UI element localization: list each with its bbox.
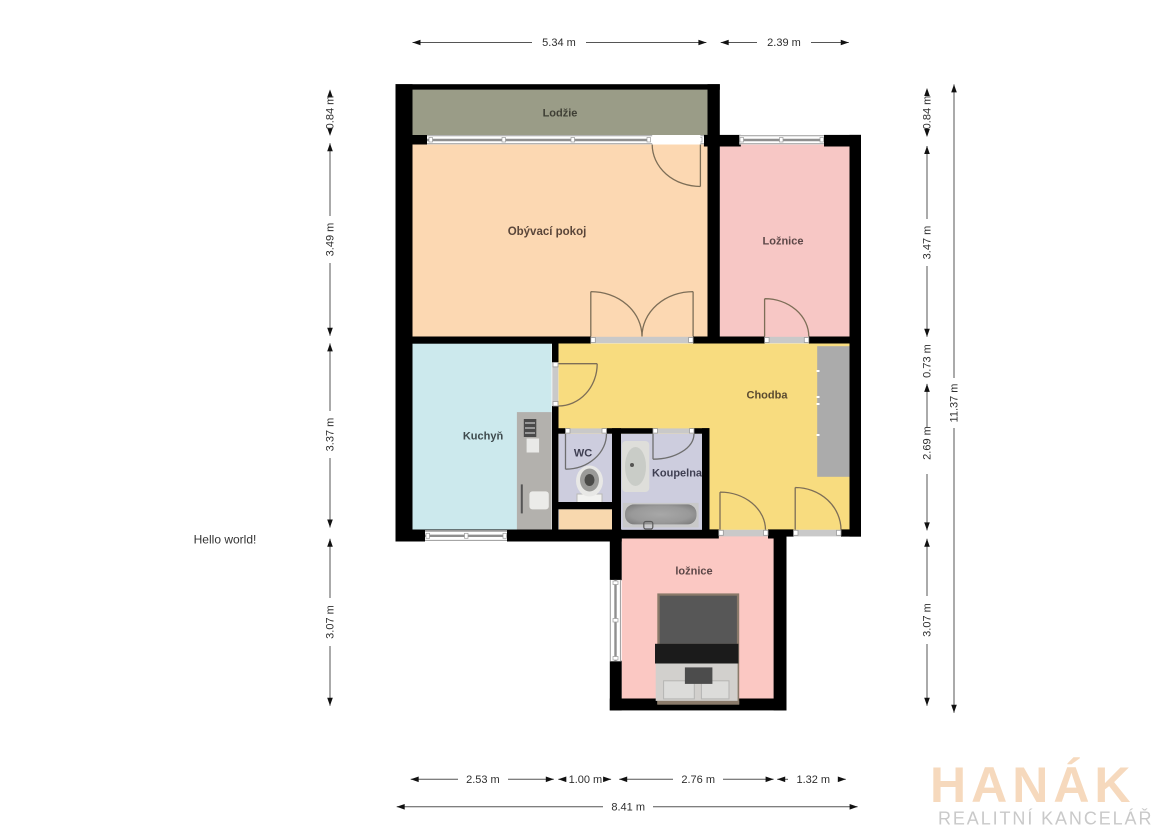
svg-text:Lodžie: Lodžie [543, 108, 578, 120]
svg-text:8.41 m: 8.41 m [611, 802, 645, 814]
svg-text:Chodba: Chodba [747, 390, 789, 402]
svg-text:ložnice: ložnice [675, 566, 712, 578]
svg-text:0.84 m: 0.84 m [922, 96, 934, 130]
svg-text:3.37 m: 3.37 m [325, 418, 337, 452]
svg-text:2.53 m: 2.53 m [466, 774, 500, 786]
svg-text:WC: WC [574, 448, 592, 460]
svg-text:HANÁK: HANÁK [930, 757, 1136, 813]
svg-text:Hello world!: Hello world! [194, 533, 257, 547]
svg-text:0.84 m: 0.84 m [325, 96, 337, 130]
svg-text:5.34 m: 5.34 m [542, 37, 576, 49]
svg-text:3.07 m: 3.07 m [325, 605, 337, 639]
svg-text:REALITNÍ KANCELÁŘ: REALITNÍ KANCELÁŘ [938, 809, 1152, 826]
svg-text:Kuchyň: Kuchyň [463, 431, 504, 443]
svg-text:2.39 m: 2.39 m [767, 37, 801, 49]
svg-text:1.32 m: 1.32 m [796, 774, 830, 786]
svg-text:1.00 m: 1.00 m [569, 774, 603, 786]
svg-text:3.07 m: 3.07 m [922, 603, 934, 637]
svg-text:Ložnice: Ložnice [763, 236, 804, 248]
svg-text:11.37 m: 11.37 m [949, 384, 961, 423]
svg-text:2.76 m: 2.76 m [681, 774, 715, 786]
svg-text:3.49 m: 3.49 m [325, 223, 337, 257]
svg-text:Obývací pokoj: Obývací pokoj [508, 226, 587, 238]
svg-text:2.69 m: 2.69 m [922, 426, 934, 460]
svg-text:0.73 m: 0.73 m [922, 344, 934, 378]
svg-text:Koupelna: Koupelna [652, 468, 703, 480]
svg-text:3.47 m: 3.47 m [922, 226, 934, 260]
